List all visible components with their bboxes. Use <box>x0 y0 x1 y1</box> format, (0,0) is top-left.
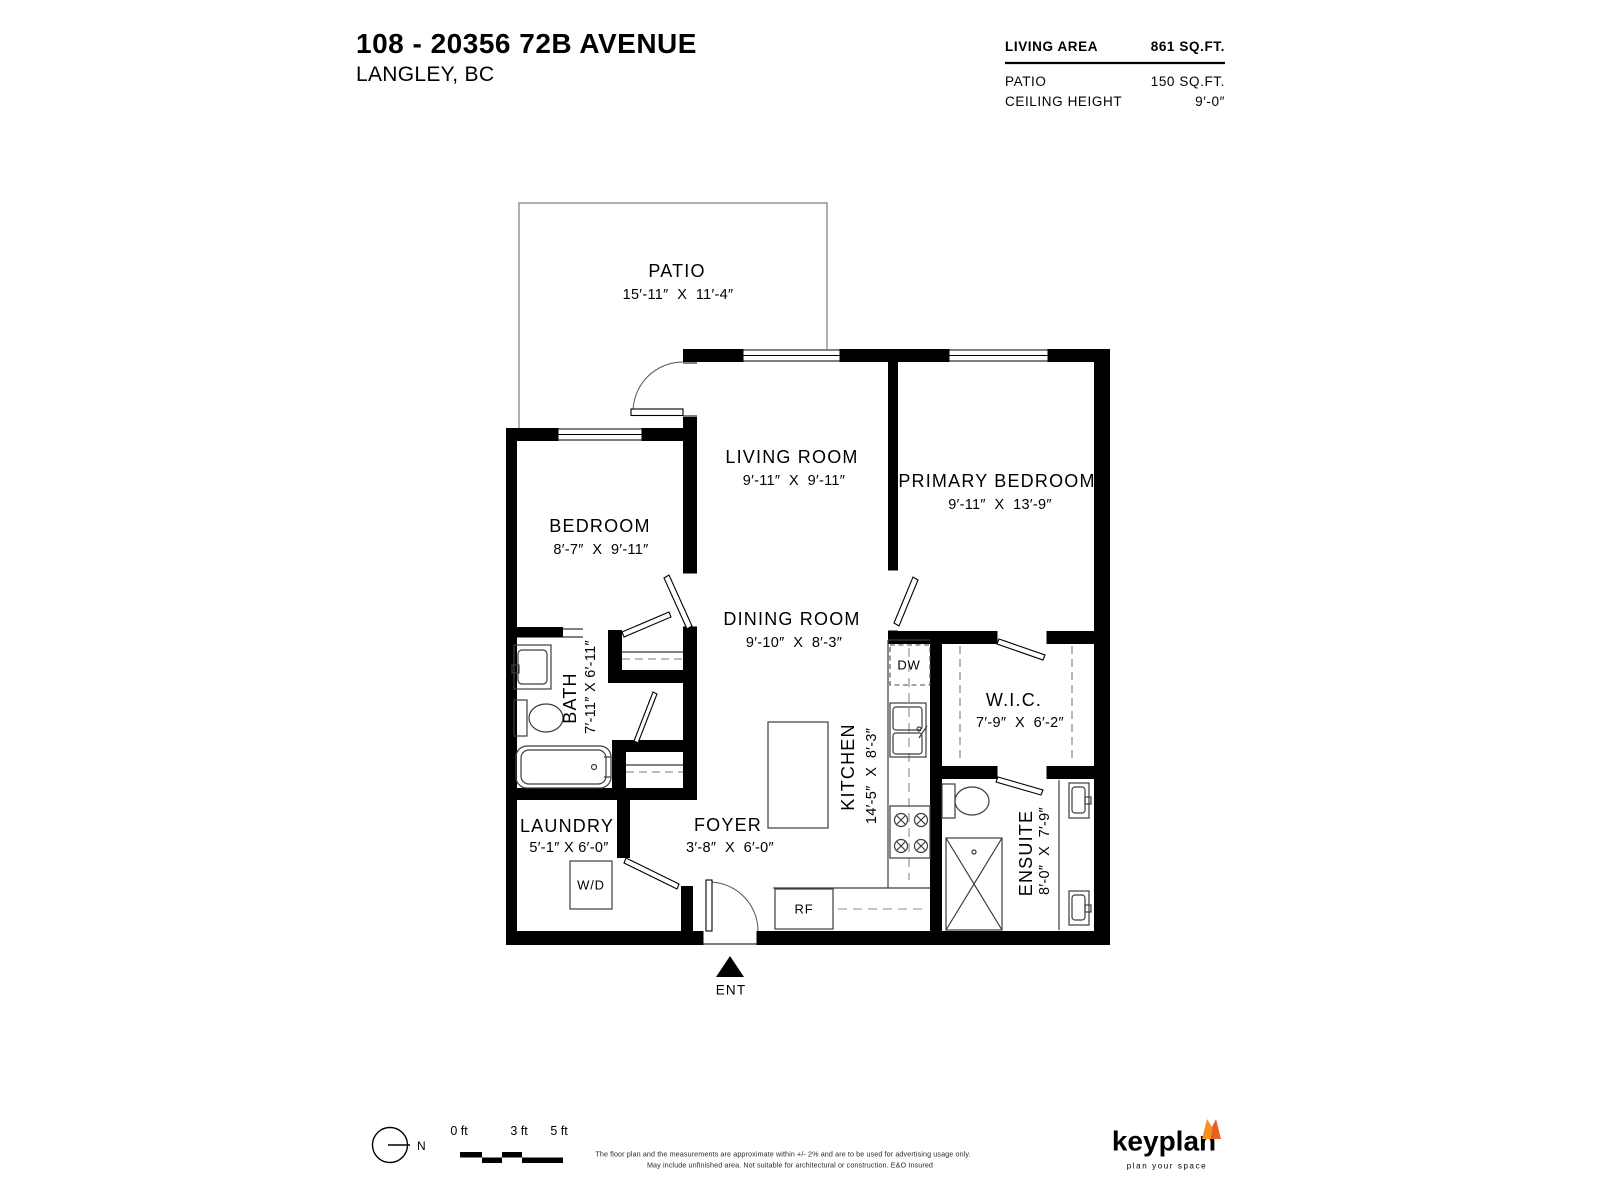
stat-value-living-area: 861 SQ.FT. <box>1151 39 1225 54</box>
room-dims-laundry: 5′-1″ X 6′-0″ <box>529 840 608 856</box>
fixture-label-refrigerator: RF <box>795 902 814 917</box>
ensuite-door <box>996 766 1047 795</box>
room-dims-kitchen: 14′-5″ X 8′-3″ <box>864 728 880 824</box>
compass: N <box>373 1128 426 1163</box>
page-title: 108 - 20356 72B AVENUE <box>356 28 697 59</box>
room-dims-bath: 7′-11″ X 6′-11″ <box>583 640 599 734</box>
entry-door <box>703 880 758 945</box>
room-label-dining-room: DINING ROOM <box>723 609 860 629</box>
scale-label-0ft: 0 ft <box>450 1124 468 1138</box>
footer: N 0 ft 3 ft 5 ft The floor plan and the … <box>373 1119 1222 1171</box>
fox-icon-dark <box>1211 1119 1221 1139</box>
closet-door <box>622 612 671 637</box>
scale-bar-segments <box>460 1152 563 1163</box>
room-dims-bedroom: 8′-7″ X 9′-11″ <box>553 542 648 558</box>
stat-label-living-area: LIVING AREA <box>1005 39 1098 54</box>
bath-toilet <box>514 700 563 736</box>
room-dims-patio: 15′-11″ X 11′-4″ <box>623 287 734 303</box>
room-label-bath: BATH <box>560 672 580 723</box>
entry-marker: ENT <box>716 956 747 998</box>
laundry-door <box>624 858 679 889</box>
brand-logo: keyplan plan your space <box>1112 1119 1221 1171</box>
fixture-label-dishwasher: DW <box>897 658 920 673</box>
disclaimer-line1: The floor plan and the measurements are … <box>595 1150 970 1159</box>
fixture-label-washer-dryer: W/D <box>577 878 605 893</box>
patio-door <box>631 362 697 417</box>
bedroom-door <box>664 573 697 629</box>
page-subtitle: LANGLEY, BC <box>356 63 494 86</box>
bedroom-window <box>558 428 642 441</box>
bathtub <box>516 746 611 788</box>
ensuite-sink-2 <box>1069 891 1091 925</box>
ensuite-toilet <box>942 784 989 818</box>
scale-label-3ft: 3 ft <box>510 1124 528 1138</box>
room-dims-dining-room: 9′-10″ X 8′-3″ <box>746 635 842 651</box>
shower <box>946 838 1002 930</box>
stat-value-ceiling-height: 9′-0″ <box>1195 94 1225 109</box>
entry-label: ENT <box>716 983 747 998</box>
area-stats-table: LIVING AREA 861 SQ.FT. PATIO 150 SQ.FT. … <box>1005 39 1225 109</box>
room-label-bedroom: BEDROOM <box>549 516 650 536</box>
room-label-foyer: FOYER <box>694 815 762 835</box>
wic-door <box>997 631 1047 660</box>
stat-label-ceiling-height: CEILING HEIGHT <box>1005 94 1122 109</box>
room-label-ensuite: ENSUITE <box>1016 810 1036 896</box>
scale-bar: 0 ft 3 ft 5 ft <box>450 1124 568 1163</box>
room-label-patio: PATIO <box>648 261 705 281</box>
scale-label-5ft: 5 ft <box>550 1124 568 1138</box>
kitchen-island <box>768 722 828 828</box>
room-dims-wic: 7′-9″ X 6′-2″ <box>976 715 1064 731</box>
room-label-wic: W.I.C. <box>986 690 1042 710</box>
room-dims-primary-bedroom: 9′-11″ X 13′-9″ <box>948 497 1052 513</box>
living-room-window <box>743 349 840 362</box>
entry-arrow-icon <box>716 956 744 977</box>
disclaimer: The floor plan and the measurements are … <box>595 1150 970 1170</box>
floorplan-canvas: 108 - 20356 72B AVENUE LANGLEY, BC LIVIN… <box>0 0 1600 1200</box>
stat-label-patio: PATIO <box>1005 74 1047 89</box>
primary-bedroom-window <box>949 349 1048 362</box>
brand-name: keyplan <box>1112 1126 1216 1157</box>
disclaimer-line2: May include unfinished area. Not suitabl… <box>647 1161 933 1170</box>
room-dims-living-room: 9′-11″ X 9′-11″ <box>743 473 845 489</box>
windows <box>558 349 1048 441</box>
room-label-laundry: LAUNDRY <box>520 816 614 836</box>
compass-north-label: N <box>417 1139 426 1153</box>
bath-vanity-sink <box>512 645 551 689</box>
stove <box>890 806 930 858</box>
room-label-living-room: LIVING ROOM <box>725 447 858 467</box>
room-label-kitchen: KITCHEN <box>838 723 858 810</box>
floorplan-page: 108 - 20356 72B AVENUE LANGLEY, BC LIVIN… <box>0 0 1600 1200</box>
ensuite-sink-1 <box>1069 783 1091 818</box>
brand-tagline: plan your space <box>1127 1162 1207 1171</box>
room-dims-ensuite: 8′-0″ X 7′-9″ <box>1037 807 1053 895</box>
patio-outline <box>519 203 827 428</box>
bath-door <box>634 692 657 743</box>
stat-value-patio: 150 SQ.FT. <box>1151 74 1225 89</box>
header: 108 - 20356 72B AVENUE LANGLEY, BC LIVIN… <box>356 28 1225 109</box>
room-label-primary-bedroom: PRIMARY BEDROOM <box>898 471 1095 491</box>
room-dims-foyer: 3′-8″ X 6′-0″ <box>686 840 774 856</box>
primary-bedroom-door <box>888 570 918 631</box>
